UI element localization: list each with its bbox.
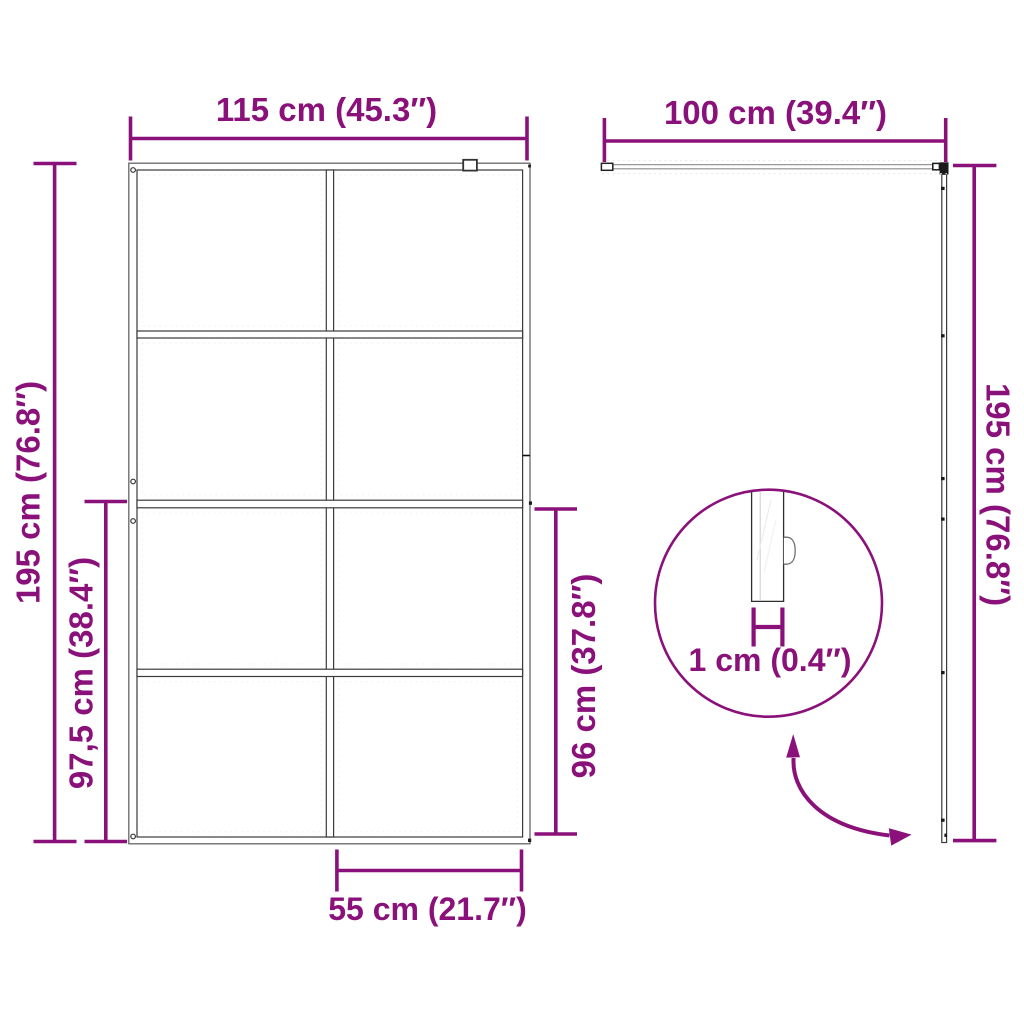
svg-text:100 cm (39.4″): 100 cm (39.4″) bbox=[664, 94, 887, 131]
svg-text:195 cm (76.8″): 195 cm (76.8″) bbox=[10, 381, 47, 604]
svg-text:55 cm (21.7″): 55 cm (21.7″) bbox=[328, 891, 527, 927]
svg-text:115 cm (45.3″): 115 cm (45.3″) bbox=[216, 91, 437, 128]
svg-text:96 cm (37.8″): 96 cm (37.8″) bbox=[565, 574, 602, 779]
svg-text:195 cm (76.8″): 195 cm (76.8″) bbox=[980, 383, 1017, 606]
svg-text:97,5 cm (38.4″): 97,5 cm (38.4″) bbox=[63, 557, 100, 789]
svg-text:1 cm (0.4″): 1 cm (0.4″) bbox=[689, 642, 852, 678]
